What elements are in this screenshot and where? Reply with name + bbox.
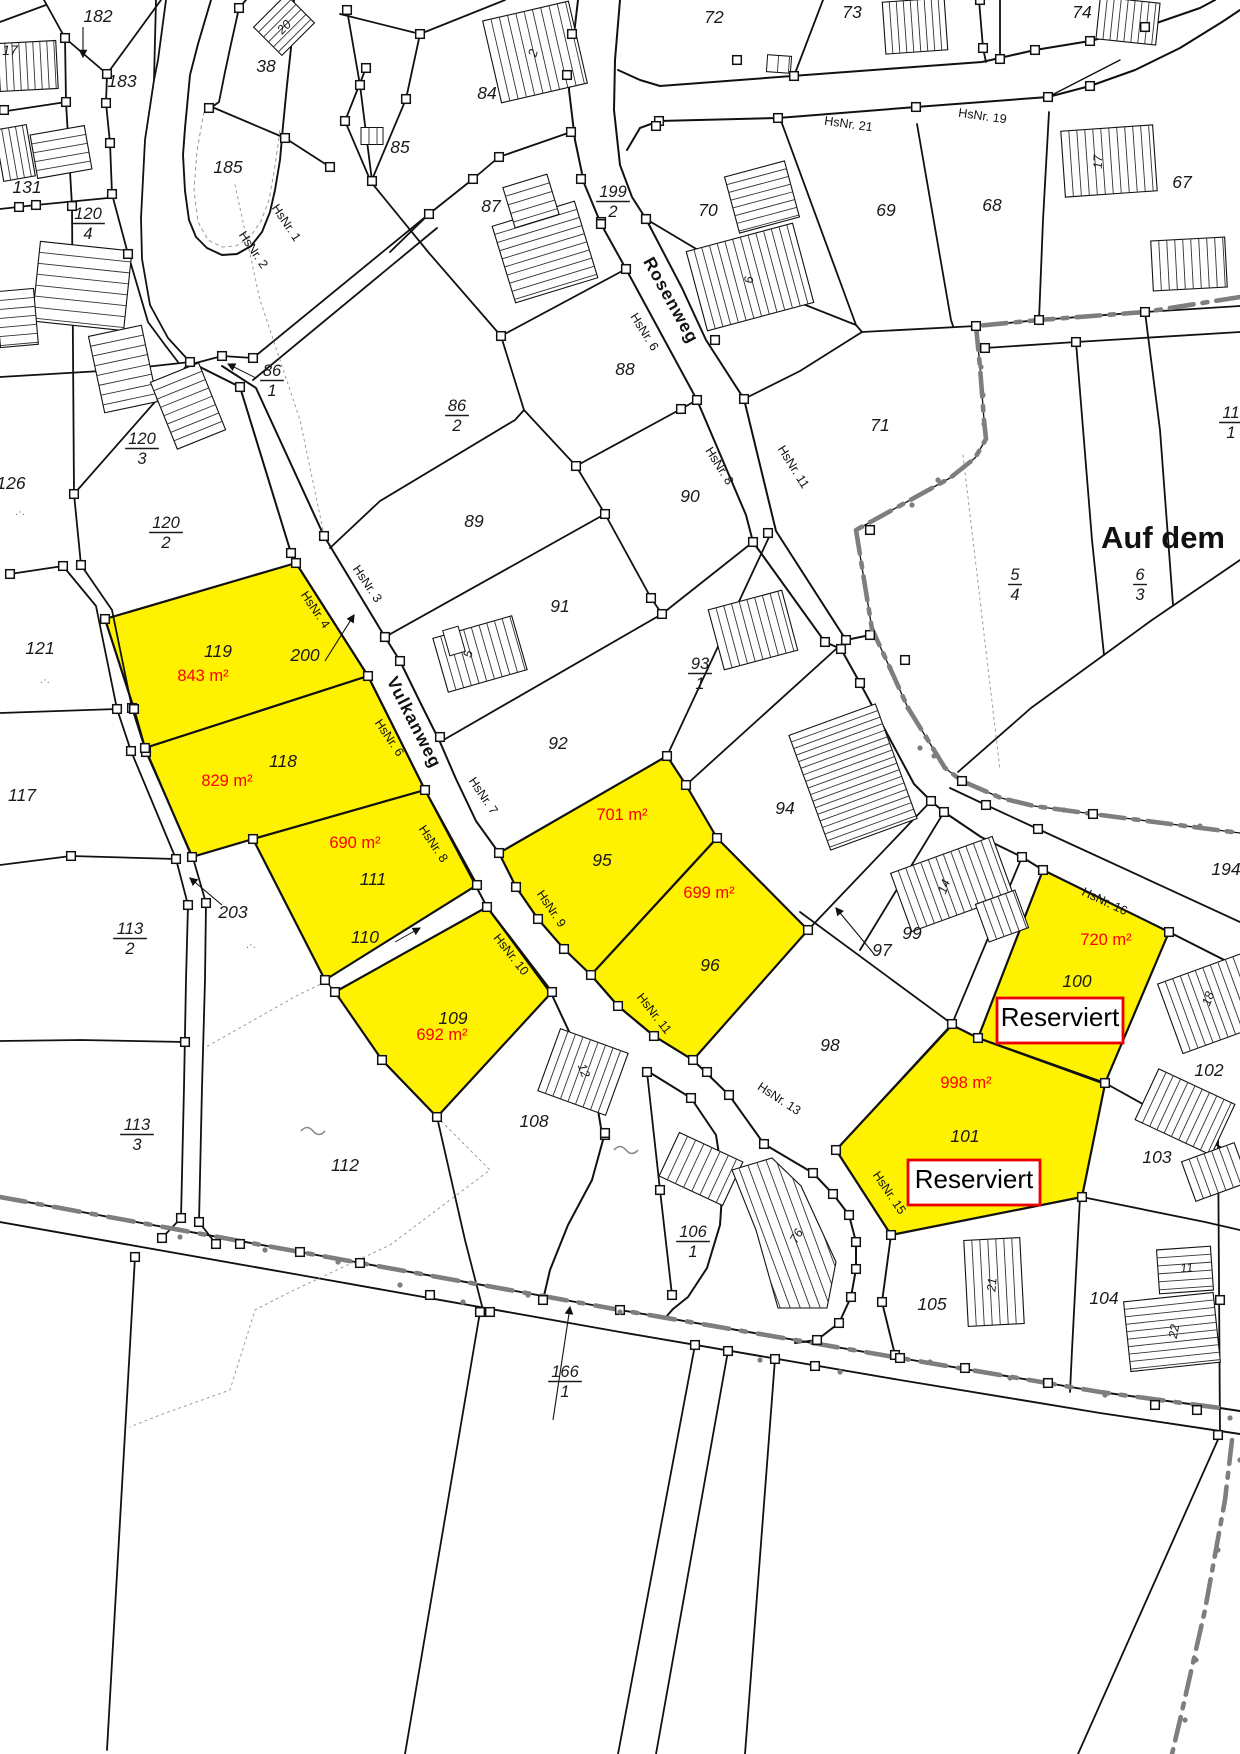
svg-text:4: 4 xyxy=(83,225,92,243)
svg-text:Reserviert: Reserviert xyxy=(1001,1002,1120,1032)
svg-text:86: 86 xyxy=(448,397,467,415)
svg-text:120: 120 xyxy=(128,430,156,448)
svg-text:119: 119 xyxy=(204,641,232,661)
svg-text:199: 199 xyxy=(599,183,627,201)
svg-text:998 m²: 998 m² xyxy=(940,1074,992,1092)
svg-text:.·.: .·. xyxy=(15,506,25,518)
svg-text:93: 93 xyxy=(691,655,710,673)
svg-text:1: 1 xyxy=(1226,424,1235,442)
svg-text:71: 71 xyxy=(870,415,889,435)
svg-text:3: 3 xyxy=(137,450,147,468)
svg-text:117: 117 xyxy=(8,785,37,805)
svg-text:4: 4 xyxy=(1010,586,1019,604)
svg-text:126: 126 xyxy=(0,473,26,493)
svg-text:113: 113 xyxy=(117,920,144,938)
svg-text:84: 84 xyxy=(477,83,497,103)
svg-text:68: 68 xyxy=(982,195,1002,215)
svg-text:3: 3 xyxy=(132,1136,142,1154)
svg-text:113: 113 xyxy=(124,1116,151,1134)
svg-text:91: 91 xyxy=(550,596,569,616)
svg-text:109: 109 xyxy=(438,1008,467,1028)
svg-text:95: 95 xyxy=(592,850,612,870)
svg-text:2: 2 xyxy=(124,940,134,958)
svg-text:701 m²: 701 m² xyxy=(596,806,648,824)
svg-text:6: 6 xyxy=(1135,566,1145,584)
svg-text:Auf dem: Auf dem xyxy=(1101,520,1225,555)
svg-text:2: 2 xyxy=(160,534,170,552)
svg-text:194: 194 xyxy=(1211,859,1240,879)
svg-text:98: 98 xyxy=(820,1035,840,1055)
svg-text:100: 100 xyxy=(1062,971,1091,991)
svg-text:720 m²: 720 m² xyxy=(1080,931,1132,949)
svg-text:.·.: .·. xyxy=(246,939,256,951)
svg-text:183: 183 xyxy=(107,71,136,91)
svg-text:104: 104 xyxy=(1089,1288,1118,1308)
svg-text:11: 11 xyxy=(1222,404,1239,422)
svg-text:99: 99 xyxy=(902,923,922,943)
svg-text:121: 121 xyxy=(25,638,54,658)
svg-text:86: 86 xyxy=(263,362,282,380)
svg-text:690 m²: 690 m² xyxy=(329,834,381,852)
svg-text:1: 1 xyxy=(695,675,704,693)
svg-text:5: 5 xyxy=(1010,566,1020,584)
svg-text:92: 92 xyxy=(548,733,568,753)
svg-text:96: 96 xyxy=(700,955,720,975)
svg-text:203: 203 xyxy=(217,902,247,922)
svg-text:11: 11 xyxy=(1180,1261,1194,1276)
svg-text:1: 1 xyxy=(267,382,276,400)
svg-text:102: 102 xyxy=(1194,1060,1223,1080)
svg-text:73: 73 xyxy=(842,2,862,22)
svg-text:87: 87 xyxy=(481,196,502,216)
svg-text:22: 22 xyxy=(1166,1323,1182,1340)
svg-text:70: 70 xyxy=(698,200,718,220)
svg-text:69: 69 xyxy=(876,200,896,220)
svg-text:97: 97 xyxy=(872,940,893,960)
svg-text:6: 6 xyxy=(742,276,756,283)
svg-text:67: 67 xyxy=(1172,172,1193,192)
svg-text:120: 120 xyxy=(74,205,102,223)
svg-text:1: 1 xyxy=(560,1383,569,1401)
svg-text:131: 131 xyxy=(12,177,41,197)
svg-text:2: 2 xyxy=(451,417,461,435)
svg-text:2: 2 xyxy=(607,203,617,221)
svg-text:88: 88 xyxy=(615,359,635,379)
svg-text:108: 108 xyxy=(519,1111,548,1131)
svg-text:829 m²: 829 m² xyxy=(201,772,253,790)
svg-text:843 m²: 843 m² xyxy=(177,667,229,685)
svg-text:3: 3 xyxy=(1135,586,1145,604)
svg-text:21: 21 xyxy=(984,1277,999,1293)
svg-text:1: 1 xyxy=(688,1243,697,1261)
svg-text:17: 17 xyxy=(2,42,19,58)
svg-text:103: 103 xyxy=(1142,1147,1171,1167)
svg-text:85: 85 xyxy=(390,137,410,157)
svg-text:89: 89 xyxy=(464,511,484,531)
svg-text:110: 110 xyxy=(351,927,379,947)
svg-text:112: 112 xyxy=(331,1155,359,1175)
svg-text:38: 38 xyxy=(256,56,276,76)
svg-text:105: 105 xyxy=(917,1294,946,1314)
svg-text:101: 101 xyxy=(950,1126,979,1146)
svg-text:90: 90 xyxy=(680,486,700,506)
svg-text:Reserviert: Reserviert xyxy=(915,1164,1034,1194)
svg-text:200: 200 xyxy=(289,645,319,665)
svg-text:692 m²: 692 m² xyxy=(416,1026,468,1044)
svg-text:166: 166 xyxy=(551,1363,579,1381)
svg-text:72: 72 xyxy=(704,7,724,27)
svg-text:182: 182 xyxy=(83,6,112,26)
svg-text:118: 118 xyxy=(269,751,297,771)
svg-text:94: 94 xyxy=(775,798,795,818)
svg-text:74: 74 xyxy=(1072,2,1092,22)
svg-text:185: 185 xyxy=(213,157,242,177)
svg-text:17: 17 xyxy=(1091,154,1106,169)
svg-text:699 m²: 699 m² xyxy=(683,884,735,902)
svg-text:111: 111 xyxy=(360,869,387,889)
svg-text:.·.: .·. xyxy=(40,674,50,686)
svg-text:106: 106 xyxy=(679,1223,707,1241)
svg-text:120: 120 xyxy=(152,514,180,532)
